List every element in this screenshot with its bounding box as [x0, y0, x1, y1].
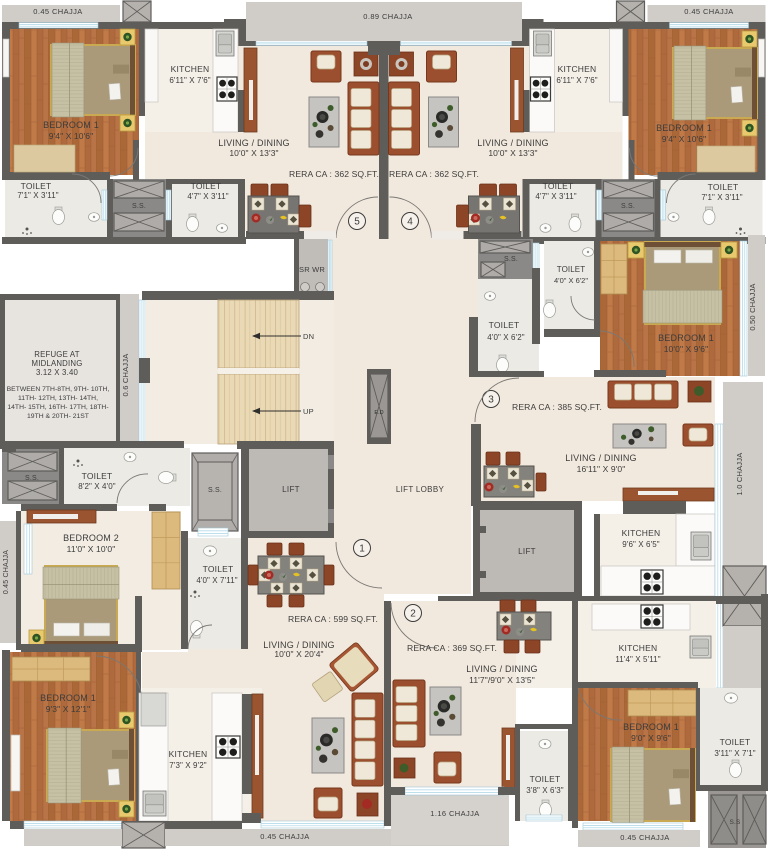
svg-text:4'0" X 6'2": 4'0" X 6'2": [554, 276, 588, 285]
svg-text:4'7" X 3'11": 4'7" X 3'11": [187, 192, 228, 201]
svg-text:7'3" X 9'2": 7'3" X 9'2": [169, 761, 206, 770]
svg-text:KITCHEN: KITCHEN: [169, 749, 208, 759]
svg-text:0.50 CHAJJA: 0.50 CHAJJA: [748, 283, 757, 330]
svg-text:DN: DN: [303, 332, 314, 341]
svg-text:BEDROOM 1: BEDROOM 1: [623, 722, 679, 732]
svg-text:0.45 CHAJJA: 0.45 CHAJJA: [33, 7, 82, 16]
svg-text:RERA CA : 362 SQ.FT.: RERA CA : 362 SQ.FT.: [289, 169, 379, 179]
svg-text:1.0 CHAJJA: 1.0 CHAJJA: [735, 453, 744, 496]
svg-text:4'7" X 3'11": 4'7" X 3'11": [535, 192, 576, 201]
svg-text:KITCHEN: KITCHEN: [558, 64, 597, 74]
svg-text:TOILET: TOILET: [720, 737, 751, 747]
svg-text:TOILET: TOILET: [557, 265, 585, 274]
svg-text:KITCHEN: KITCHEN: [622, 528, 661, 538]
svg-text:9'4" X 10'6": 9'4" X 10'6": [662, 134, 707, 144]
svg-text:TOILET: TOILET: [708, 182, 739, 192]
svg-text:TOILET: TOILET: [530, 774, 561, 784]
svg-text:3.12 X 3.40: 3.12 X 3.40: [36, 368, 79, 377]
svg-text:0.45 CHAJJA: 0.45 CHAJJA: [260, 832, 309, 841]
svg-text:BEDROOM 1: BEDROOM 1: [658, 333, 714, 343]
svg-text:S.S: S.S: [729, 819, 741, 826]
svg-text:MIDLANDING: MIDLANDING: [32, 359, 83, 368]
svg-text:10'0" X 13'3": 10'0" X 13'3": [488, 148, 537, 158]
svg-text:LIVING / DINING: LIVING / DINING: [565, 453, 637, 463]
svg-text:9'3" X 12'1": 9'3" X 12'1": [46, 704, 91, 714]
svg-text:TOILET: TOILET: [191, 181, 222, 191]
svg-text:RERA CA : 369 SQ.FT.: RERA CA : 369 SQ.FT.: [407, 643, 497, 653]
svg-text:5: 5: [354, 217, 360, 228]
svg-text:7'1" X 3'11": 7'1" X 3'11": [701, 193, 742, 202]
svg-text:11'7"/9'0" X 13'5": 11'7"/9'0" X 13'5": [469, 675, 535, 685]
svg-text:KITCHEN: KITCHEN: [619, 643, 658, 653]
svg-text:0.89 CHAJJA: 0.89 CHAJJA: [363, 12, 412, 21]
svg-text:6'11" X 7'6": 6'11" X 7'6": [556, 76, 597, 85]
svg-text:11'4" X 5'11": 11'4" X 5'11": [615, 655, 660, 664]
svg-text:16'11" X 9'0": 16'11" X 9'0": [577, 464, 626, 474]
svg-text:0.45 CHAJJA: 0.45 CHAJJA: [620, 833, 669, 842]
svg-text:TOILET: TOILET: [21, 181, 52, 191]
svg-text:LIVING / DINING: LIVING / DINING: [477, 138, 549, 148]
svg-text:SR WR: SR WR: [299, 265, 325, 274]
svg-text:LIFT: LIFT: [518, 547, 536, 556]
svg-text:19TH & 20TH- 21ST: 19TH & 20TH- 21ST: [27, 413, 89, 420]
svg-text:REFUGE AT: REFUGE AT: [34, 350, 79, 359]
svg-text:TOILET: TOILET: [489, 320, 520, 330]
svg-text:RERA CA : 385 SQ.FT.: RERA CA : 385 SQ.FT.: [512, 402, 602, 412]
svg-text:LIFT LOBBY: LIFT LOBBY: [396, 485, 445, 494]
svg-text:0.45 CHAJJA: 0.45 CHAJJA: [684, 7, 733, 16]
svg-text:4: 4: [407, 217, 413, 228]
svg-text:LIFT: LIFT: [282, 485, 300, 494]
svg-text:10'0" X 13'3": 10'0" X 13'3": [229, 148, 278, 158]
svg-text:BEDROOM 1: BEDROOM 1: [656, 123, 712, 133]
svg-text:S.S.: S.S.: [25, 475, 39, 482]
svg-text:LIVING / DINING: LIVING / DINING: [218, 138, 290, 148]
svg-text:TOILET: TOILET: [203, 564, 234, 574]
svg-text:KITCHEN: KITCHEN: [171, 64, 210, 74]
svg-text:10'0" X 20'4": 10'0" X 20'4": [274, 649, 323, 659]
svg-text:3'8" X 6'3": 3'8" X 6'3": [526, 786, 563, 795]
svg-text:S.S.: S.S.: [208, 487, 222, 494]
svg-text:3: 3: [488, 395, 494, 406]
svg-text:11TH- 12TH, 13TH- 14TH,: 11TH- 12TH, 13TH- 14TH,: [18, 395, 98, 402]
svg-text:6'11" X 7'6": 6'11" X 7'6": [169, 76, 210, 85]
svg-text:1.16 CHAJJA: 1.16 CHAJJA: [430, 809, 479, 818]
svg-text:BETWEEN 7TH-8TH, 9TH- 10TH,: BETWEEN 7TH-8TH, 9TH- 10TH,: [7, 386, 110, 393]
svg-text:8'2" X 4'0": 8'2" X 4'0": [78, 482, 115, 491]
svg-text:11'0" X 10'0": 11'0" X 10'0": [67, 544, 116, 554]
svg-text:4'0" X 6'2": 4'0" X 6'2": [487, 333, 524, 342]
svg-text:9'4" X 10'6": 9'4" X 10'6": [49, 131, 94, 141]
svg-text:2: 2: [410, 609, 416, 620]
svg-text:BEDROOM 2: BEDROOM 2: [63, 533, 119, 543]
svg-text:TOILET: TOILET: [543, 181, 574, 191]
svg-text:TOILET: TOILET: [82, 471, 113, 481]
svg-text:0.6 CHAJJA: 0.6 CHAJJA: [121, 354, 130, 397]
svg-text:10'0" X 9'6": 10'0" X 9'6": [664, 344, 709, 354]
svg-text:0.45 CHAJJA: 0.45 CHAJJA: [3, 550, 10, 594]
svg-text:E.D: E.D: [374, 410, 383, 416]
svg-text:S.S.: S.S.: [621, 203, 635, 210]
svg-text:LIVING / DINING: LIVING / DINING: [466, 664, 538, 674]
svg-text:9'6" X 6'5": 9'6" X 6'5": [622, 540, 659, 549]
svg-text:9'0" X 9'6": 9'0" X 9'6": [631, 733, 671, 743]
svg-text:BEDROOM 1: BEDROOM 1: [40, 693, 96, 703]
svg-text:S.S.: S.S.: [504, 256, 518, 263]
svg-text:7'1" X 3'11": 7'1" X 3'11": [17, 191, 58, 200]
svg-text:S.S.: S.S.: [132, 203, 146, 210]
svg-text:UP: UP: [303, 407, 314, 416]
svg-text:3'11" X 7'1": 3'11" X 7'1": [714, 749, 755, 758]
svg-text:RERA CA : 362 SQ.FT.: RERA CA : 362 SQ.FT.: [389, 169, 479, 179]
svg-text:RERA CA : 599 SQ.FT.: RERA CA : 599 SQ.FT.: [288, 614, 378, 624]
svg-text:14TH- 15TH, 16TH- 17TH, 18TH-: 14TH- 15TH, 16TH- 17TH, 18TH-: [7, 404, 108, 411]
svg-text:1: 1: [359, 544, 365, 555]
svg-text:BEDROOM 1: BEDROOM 1: [43, 120, 99, 130]
svg-text:4'0" X 7'11": 4'0" X 7'11": [196, 576, 237, 585]
